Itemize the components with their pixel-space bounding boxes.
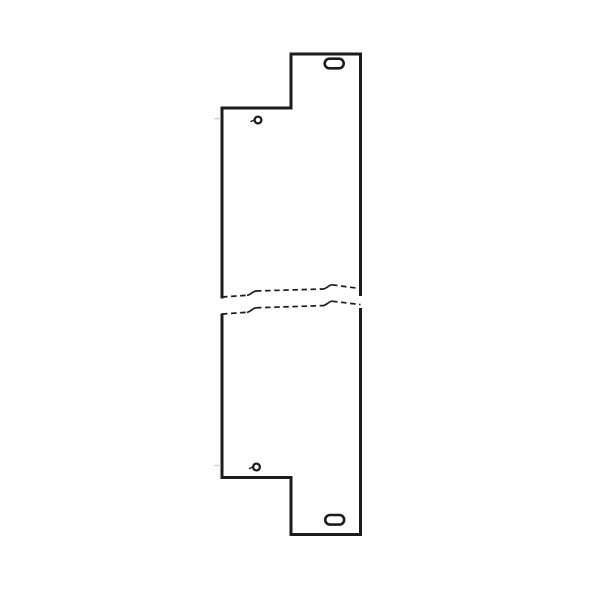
break-line-upper-dashed-1	[256, 289, 323, 291]
break-line-lower-dashed-2	[332, 301, 361, 304]
drawing-canvas	[0, 0, 600, 600]
panel-outline-lower	[222, 308, 361, 535]
break-line-lower-jog-1	[323, 301, 332, 305]
pilot-hole-top	[255, 117, 262, 124]
mounting-slot-top	[325, 59, 344, 69]
break-line-upper-dashed-0	[222, 295, 247, 297]
panel-drawing-svg	[0, 0, 600, 600]
panel-outline-upper	[222, 54, 361, 299]
break-line-lower-dashed-1	[256, 306, 323, 308]
pilot-hole-bottom	[253, 464, 260, 471]
mounting-slot-bottom	[325, 515, 344, 525]
break-line-upper-jog-0	[247, 291, 256, 295]
break-line-upper-jog-1	[323, 285, 332, 289]
break-line-lower-dashed-0	[222, 312, 247, 314]
break-line-upper-dashed-2	[332, 285, 361, 289]
break-line-lower-jog-0	[247, 308, 256, 313]
